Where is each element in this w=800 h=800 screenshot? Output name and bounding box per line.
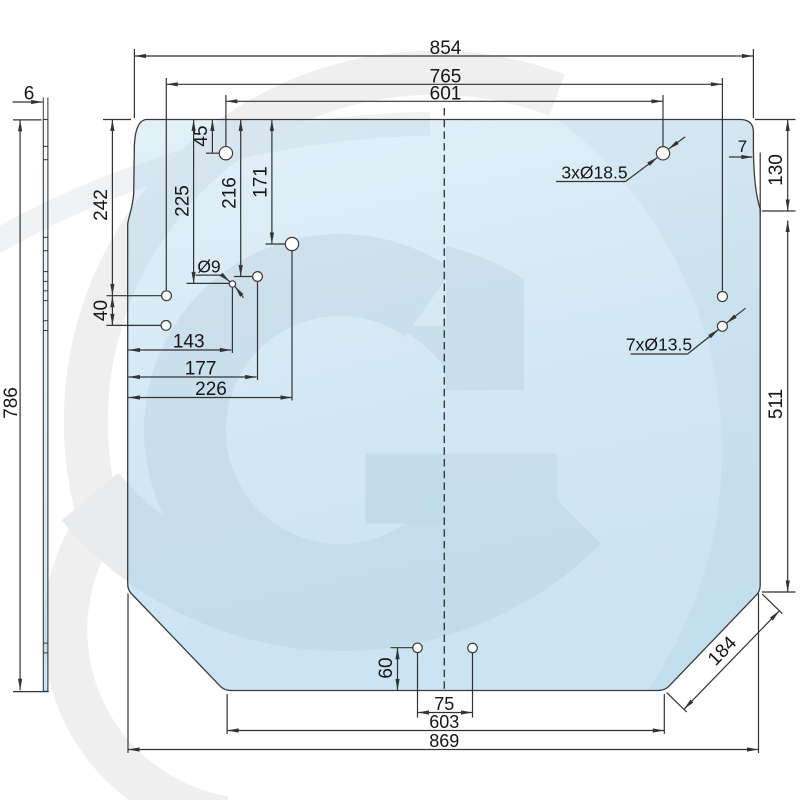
svg-text:603: 603 xyxy=(429,712,459,732)
svg-text:225: 225 xyxy=(173,185,194,217)
svg-text:854: 854 xyxy=(430,38,462,59)
svg-text:75: 75 xyxy=(434,694,454,714)
svg-text:226: 226 xyxy=(195,379,227,400)
svg-text:601: 601 xyxy=(430,83,462,104)
svg-text:3xØ18.5: 3xØ18.5 xyxy=(561,163,627,183)
svg-text:60: 60 xyxy=(376,657,397,678)
svg-text:7: 7 xyxy=(738,137,747,156)
svg-text:130: 130 xyxy=(766,154,787,186)
svg-text:6: 6 xyxy=(24,84,35,105)
svg-text:177: 177 xyxy=(185,359,217,380)
svg-text:Ø9: Ø9 xyxy=(197,257,220,277)
svg-text:242: 242 xyxy=(91,189,112,221)
svg-text:786: 786 xyxy=(1,387,22,419)
svg-text:40: 40 xyxy=(91,300,112,321)
svg-text:143: 143 xyxy=(173,332,205,353)
svg-text:7xØ13.5: 7xØ13.5 xyxy=(626,335,692,355)
svg-text:511: 511 xyxy=(766,389,787,419)
svg-text:216: 216 xyxy=(220,177,241,209)
svg-text:869: 869 xyxy=(429,731,459,751)
svg-text:171: 171 xyxy=(251,166,272,198)
